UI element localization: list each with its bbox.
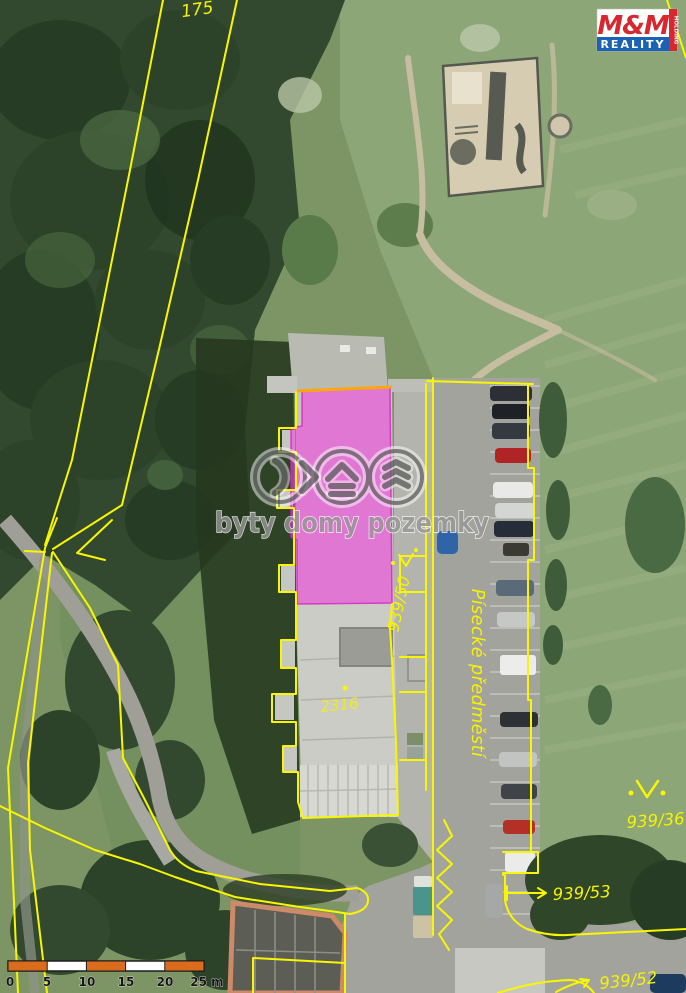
scale-tick-15: 15 — [118, 975, 135, 989]
street-name-label: Písecké předměstí — [467, 589, 487, 759]
logo-reality-text: REALITY — [600, 38, 665, 51]
scale-tick-0: 0 — [6, 975, 14, 989]
scale-tick-25m: 25 m — [190, 975, 223, 989]
logo-holding-text: HOLDING — [673, 16, 679, 45]
scale-tick-5: 5 — [43, 975, 51, 989]
mm-reality-logo: HOLDING M&M REALITY — [597, 9, 679, 51]
aerial-cadastral-map: 175 939/50 Písecké předměstí 2316 939/36… — [0, 0, 686, 993]
scale-tick-10: 10 — [79, 975, 96, 989]
parcel-label-meadow: 939/36 — [626, 809, 685, 832]
bottom-building — [230, 903, 345, 993]
watermark-text: byty domy pozemky — [215, 506, 489, 539]
road-side-tree — [362, 823, 418, 867]
logo-mm-text: M&M — [597, 11, 670, 41]
parcel-label-53: 939/53 — [552, 882, 611, 904]
scale-tick-20: 20 — [157, 975, 174, 989]
